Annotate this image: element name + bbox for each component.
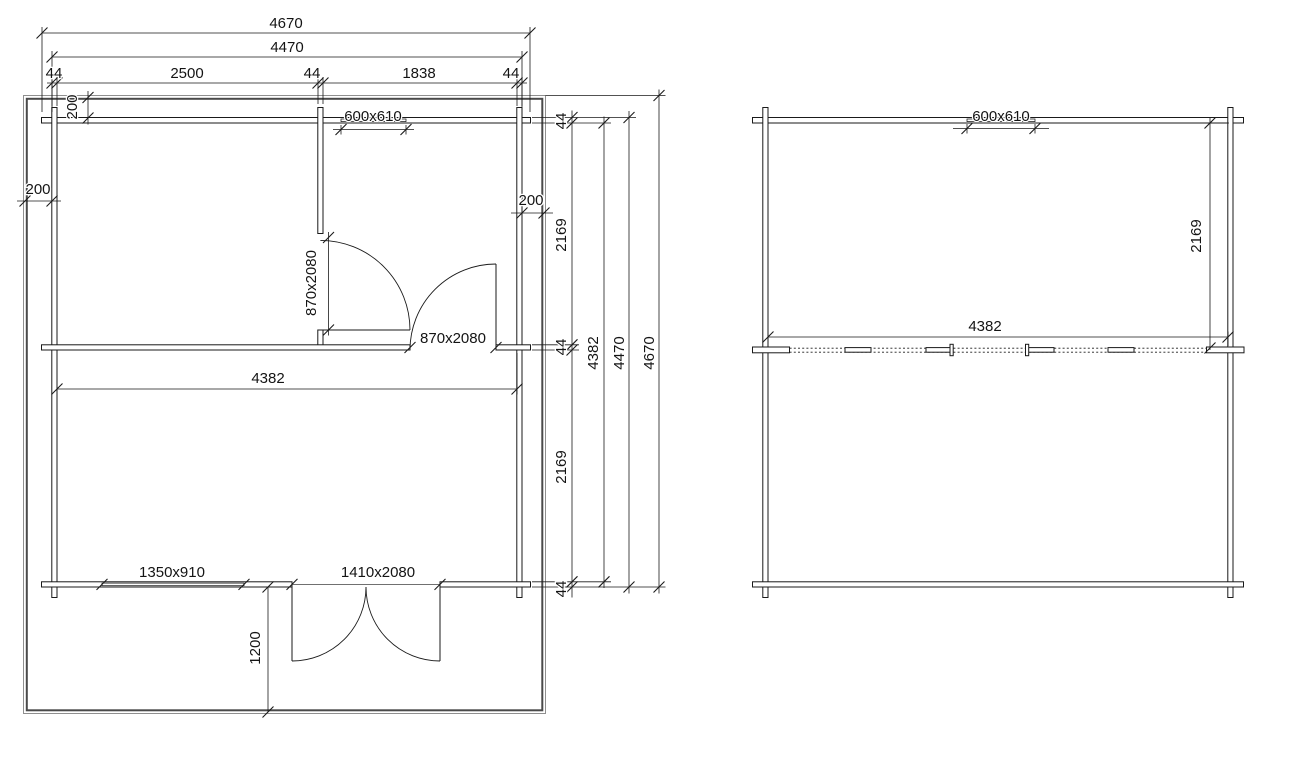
middle-wall-right-segment: [496, 345, 531, 350]
dimensions-loft: 600x610 2169 4382: [763, 108, 1234, 354]
dim-middle-door-label: 870x2080: [420, 330, 486, 347]
dim-line-shell-width: [52, 51, 522, 112]
wall-right: [517, 108, 522, 598]
joist-block: [1207, 347, 1245, 353]
entrance-door-left-arc: [292, 587, 366, 661]
partition-wall-stub: [318, 330, 323, 345]
dim-line-room-depth: [1205, 117, 1229, 350]
dim-clear-width-label: 4382: [251, 370, 284, 387]
dim-overhang-left-label: 200: [25, 181, 50, 198]
interior-walls: [42, 108, 531, 351]
plans-drawing: 4670 4470 44 2500 44 1838 44 600x610 200…: [0, 0, 1302, 762]
wall-left: [52, 108, 57, 598]
loft-floor-dashed-wall: [753, 344, 1245, 355]
dim-top-window-label: 600x610: [344, 108, 402, 125]
dim-partition-door-label: 870x2080: [303, 250, 320, 316]
dim-overall-height-label: 4670: [641, 336, 658, 369]
dim-terrace-depth-label: 1200: [247, 631, 264, 664]
dim-chain-44-label: 44: [46, 65, 63, 82]
roof-outline-inner: [27, 99, 543, 711]
partition-wall: [318, 108, 323, 234]
joist-block: [753, 347, 790, 353]
dim-chain-2500-label: 2500: [170, 65, 203, 82]
partition-door-swing-arc: [320, 240, 410, 330]
dim-chain-44-label: 44: [304, 65, 321, 82]
ground-floor-plan: 4670 4470 44 2500 44 1838 44 600x610 200…: [17, 15, 666, 718]
joist-block: [926, 348, 952, 353]
dim-overhang-top-label: 200: [64, 94, 81, 119]
wall-bottom: [753, 582, 1244, 587]
roof-terrace-outline: [24, 96, 546, 714]
exterior-walls-loft: [753, 108, 1244, 598]
joist-post: [950, 344, 953, 355]
exterior-walls: [42, 108, 531, 598]
dim-line-width-chain: [47, 77, 527, 106]
dim-shell-width-label: 4470: [270, 39, 303, 56]
dim-overhang-right-label: 200: [518, 192, 543, 209]
joist-block: [1108, 348, 1134, 353]
floor-plan-sheet: 4670 4470 44 2500 44 1838 44 600x610 200…: [0, 0, 1302, 762]
dim-hchain-44-label: 44: [553, 339, 570, 356]
dim-hchain-2169-label: 2169: [553, 218, 570, 251]
joist-block: [845, 348, 871, 353]
wall-top: [42, 118, 531, 124]
middle-wall-left-segment: [42, 345, 411, 350]
dim-hchain-44-label: 44: [553, 581, 570, 598]
joist-block: [1028, 348, 1054, 353]
dim-room-depth-label: 2169: [1188, 219, 1205, 252]
joist-post: [1026, 344, 1029, 355]
window-bottom-1350x910: [102, 583, 244, 586]
dim-overall-width-label: 4670: [269, 15, 302, 32]
roof-outline-outer: [24, 96, 546, 714]
dim-top-window-loft-label: 600x610: [972, 108, 1030, 125]
dim-clear-width-loft-label: 4382: [968, 318, 1001, 335]
loft-floor-plan: 600x610 2169 4382: [753, 108, 1245, 598]
dim-entrance-door-label: 1410x2080: [341, 564, 415, 581]
doors: [292, 240, 496, 661]
dim-hchain-2169-label: 2169: [553, 450, 570, 483]
dim-clear-height-label: 4382: [585, 336, 602, 369]
hidden-wall-dashed-lines: [756, 348, 1240, 352]
windows: [102, 119, 406, 586]
entrance-door-right-arc: [366, 587, 440, 661]
dim-hchain-44-label: 44: [553, 113, 570, 130]
dim-chain-44-label: 44: [503, 65, 520, 82]
dim-shell-height-label: 4470: [611, 336, 628, 369]
dim-chain-1838-label: 1838: [402, 65, 435, 82]
wall-bottom-right-segment: [440, 582, 531, 587]
dim-bottom-window-label: 1350x910: [139, 564, 205, 581]
dim-line-clear-width: [57, 353, 517, 395]
